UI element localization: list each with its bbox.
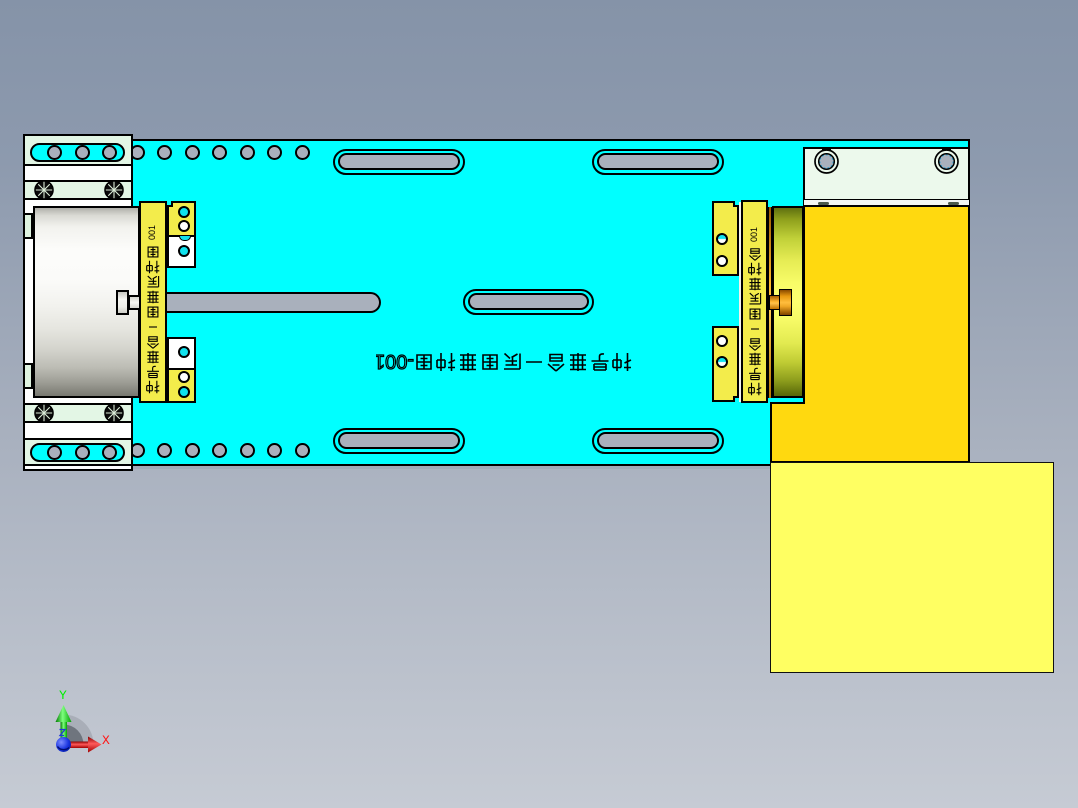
svg-text:Y: Y bbox=[59, 688, 67, 703]
svg-text:-001: -001 bbox=[376, 350, 414, 372]
svg-text:X: X bbox=[102, 733, 110, 748]
svg-text:001: 001 bbox=[749, 227, 759, 242]
svg-text:001: 001 bbox=[147, 225, 157, 240]
